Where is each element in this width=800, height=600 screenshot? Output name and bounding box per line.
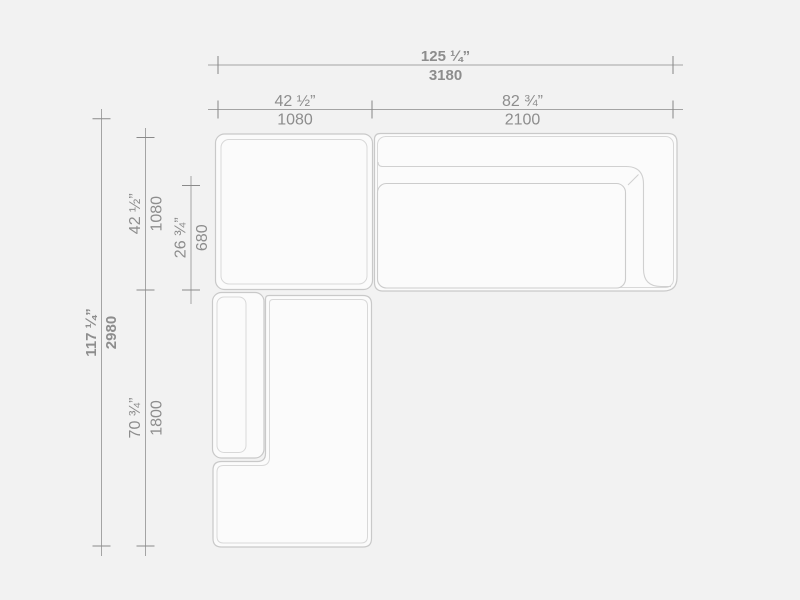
svg-text:26 ¾”: 26 ¾” (173, 217, 190, 258)
svg-text:42 ½”: 42 ½” (275, 93, 316, 110)
svg-text:117 ¼”: 117 ¼” (83, 308, 100, 356)
svg-text:2980: 2980 (103, 316, 120, 349)
svg-text:82 ¾”: 82 ¾” (502, 93, 543, 110)
svg-text:1080: 1080 (277, 112, 313, 129)
svg-text:3180: 3180 (429, 67, 462, 84)
svg-text:125 ¼”: 125 ¼” (421, 48, 470, 65)
svg-text:2100: 2100 (505, 112, 541, 129)
svg-text:1080: 1080 (149, 196, 166, 232)
svg-text:42 ½”: 42 ½” (127, 193, 144, 234)
svg-text:70 ¾”: 70 ¾” (127, 398, 144, 439)
svg-text:1800: 1800 (149, 400, 166, 436)
svg-text:680: 680 (194, 224, 211, 251)
